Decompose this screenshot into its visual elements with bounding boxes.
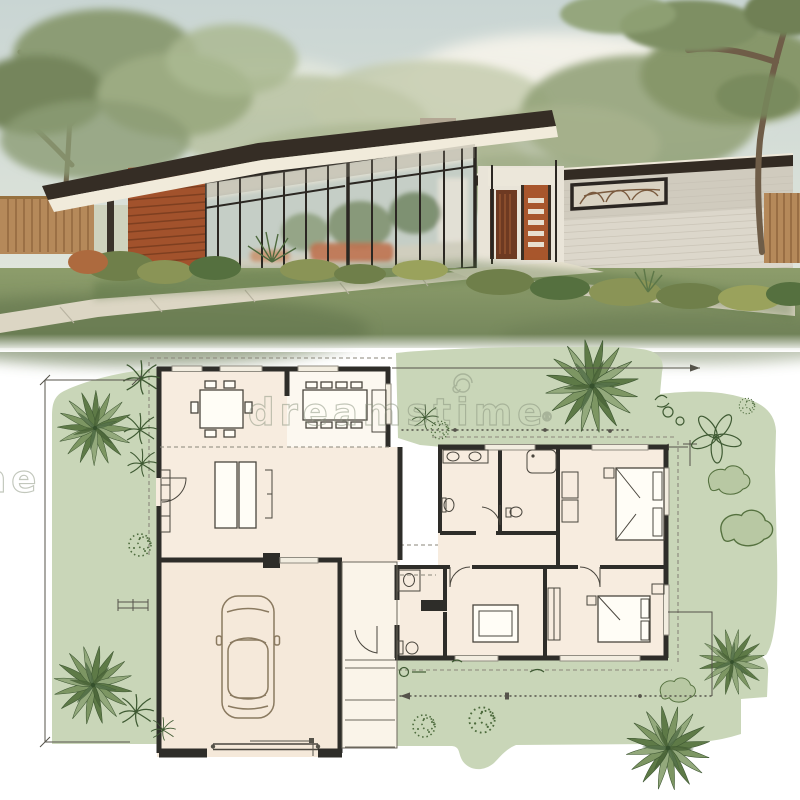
watermark-text: dreamstime bbox=[248, 391, 547, 434]
illustration: dreamstime ® dreamstime bbox=[0, 0, 800, 800]
garage bbox=[157, 562, 342, 757]
pillar bbox=[263, 553, 280, 568]
sofa bbox=[310, 243, 394, 262]
wood-fence-right bbox=[764, 193, 800, 263]
site-floor-plan: dreamstime ® dreamstime bbox=[0, 330, 778, 797]
stock-image-canvas: dreamstime ® dreamstime bbox=[0, 0, 800, 800]
entry bbox=[478, 166, 564, 268]
photo-bottom-fade bbox=[0, 334, 800, 352]
transom bbox=[488, 168, 556, 186]
dark-entry-door bbox=[496, 190, 517, 259]
orange-shrub bbox=[68, 250, 108, 274]
watermark-text-fragment: dreamstime bbox=[0, 458, 41, 501]
watermark-mark: ® bbox=[541, 410, 553, 424]
dining-table-1 bbox=[191, 381, 252, 437]
exterior-rendering bbox=[0, 0, 800, 366]
leader-dot bbox=[309, 738, 314, 743]
mural-clerestory-window bbox=[572, 179, 666, 209]
bed-2-rug bbox=[473, 605, 518, 642]
